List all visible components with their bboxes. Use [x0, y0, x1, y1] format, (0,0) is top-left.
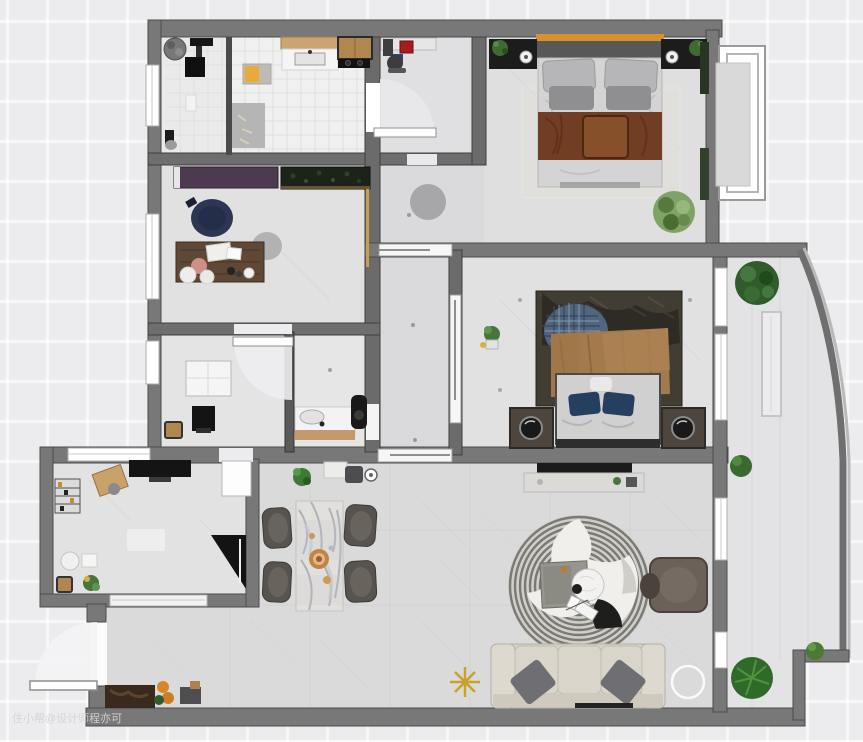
- svg-text:住小帮@设计师程亦可: 住小帮@设计师程亦可: [12, 711, 122, 725]
